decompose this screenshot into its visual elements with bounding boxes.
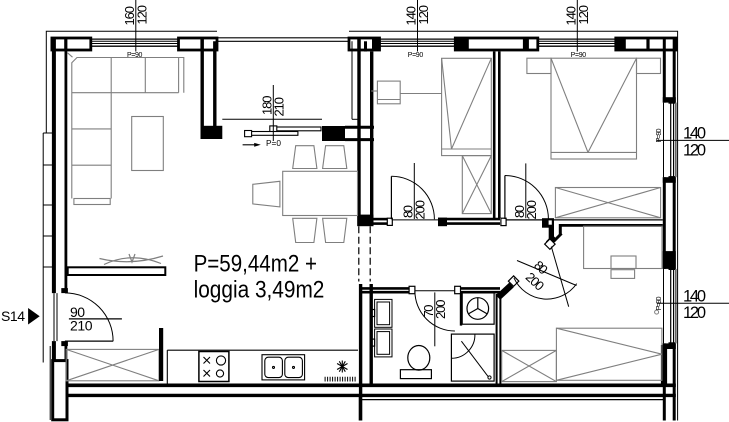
svg-text:140: 140 bbox=[683, 125, 706, 143]
svg-text:140: 140 bbox=[683, 288, 706, 306]
svg-text:120: 120 bbox=[416, 5, 431, 25]
svg-text:200: 200 bbox=[524, 200, 539, 220]
svg-text:P=59,44m2 +: P=59,44m2 + bbox=[194, 251, 317, 278]
svg-text:loggia 3,49m2: loggia 3,49m2 bbox=[194, 277, 325, 304]
svg-text:120: 120 bbox=[683, 304, 706, 322]
svg-text:210: 210 bbox=[70, 318, 93, 334]
svg-text:200: 200 bbox=[413, 200, 428, 220]
svg-text:P=90: P=90 bbox=[127, 52, 143, 59]
svg-text:120: 120 bbox=[135, 5, 150, 25]
svg-text:120: 120 bbox=[683, 141, 706, 159]
svg-text:P=90: P=90 bbox=[408, 52, 424, 59]
svg-text:120: 120 bbox=[576, 5, 591, 25]
svg-text:S14: S14 bbox=[1, 308, 25, 324]
svg-text:210: 210 bbox=[272, 97, 287, 117]
svg-text:P=90: P=90 bbox=[654, 129, 663, 143]
svg-text:200: 200 bbox=[433, 300, 448, 320]
svg-text:P=90: P=90 bbox=[654, 297, 663, 311]
